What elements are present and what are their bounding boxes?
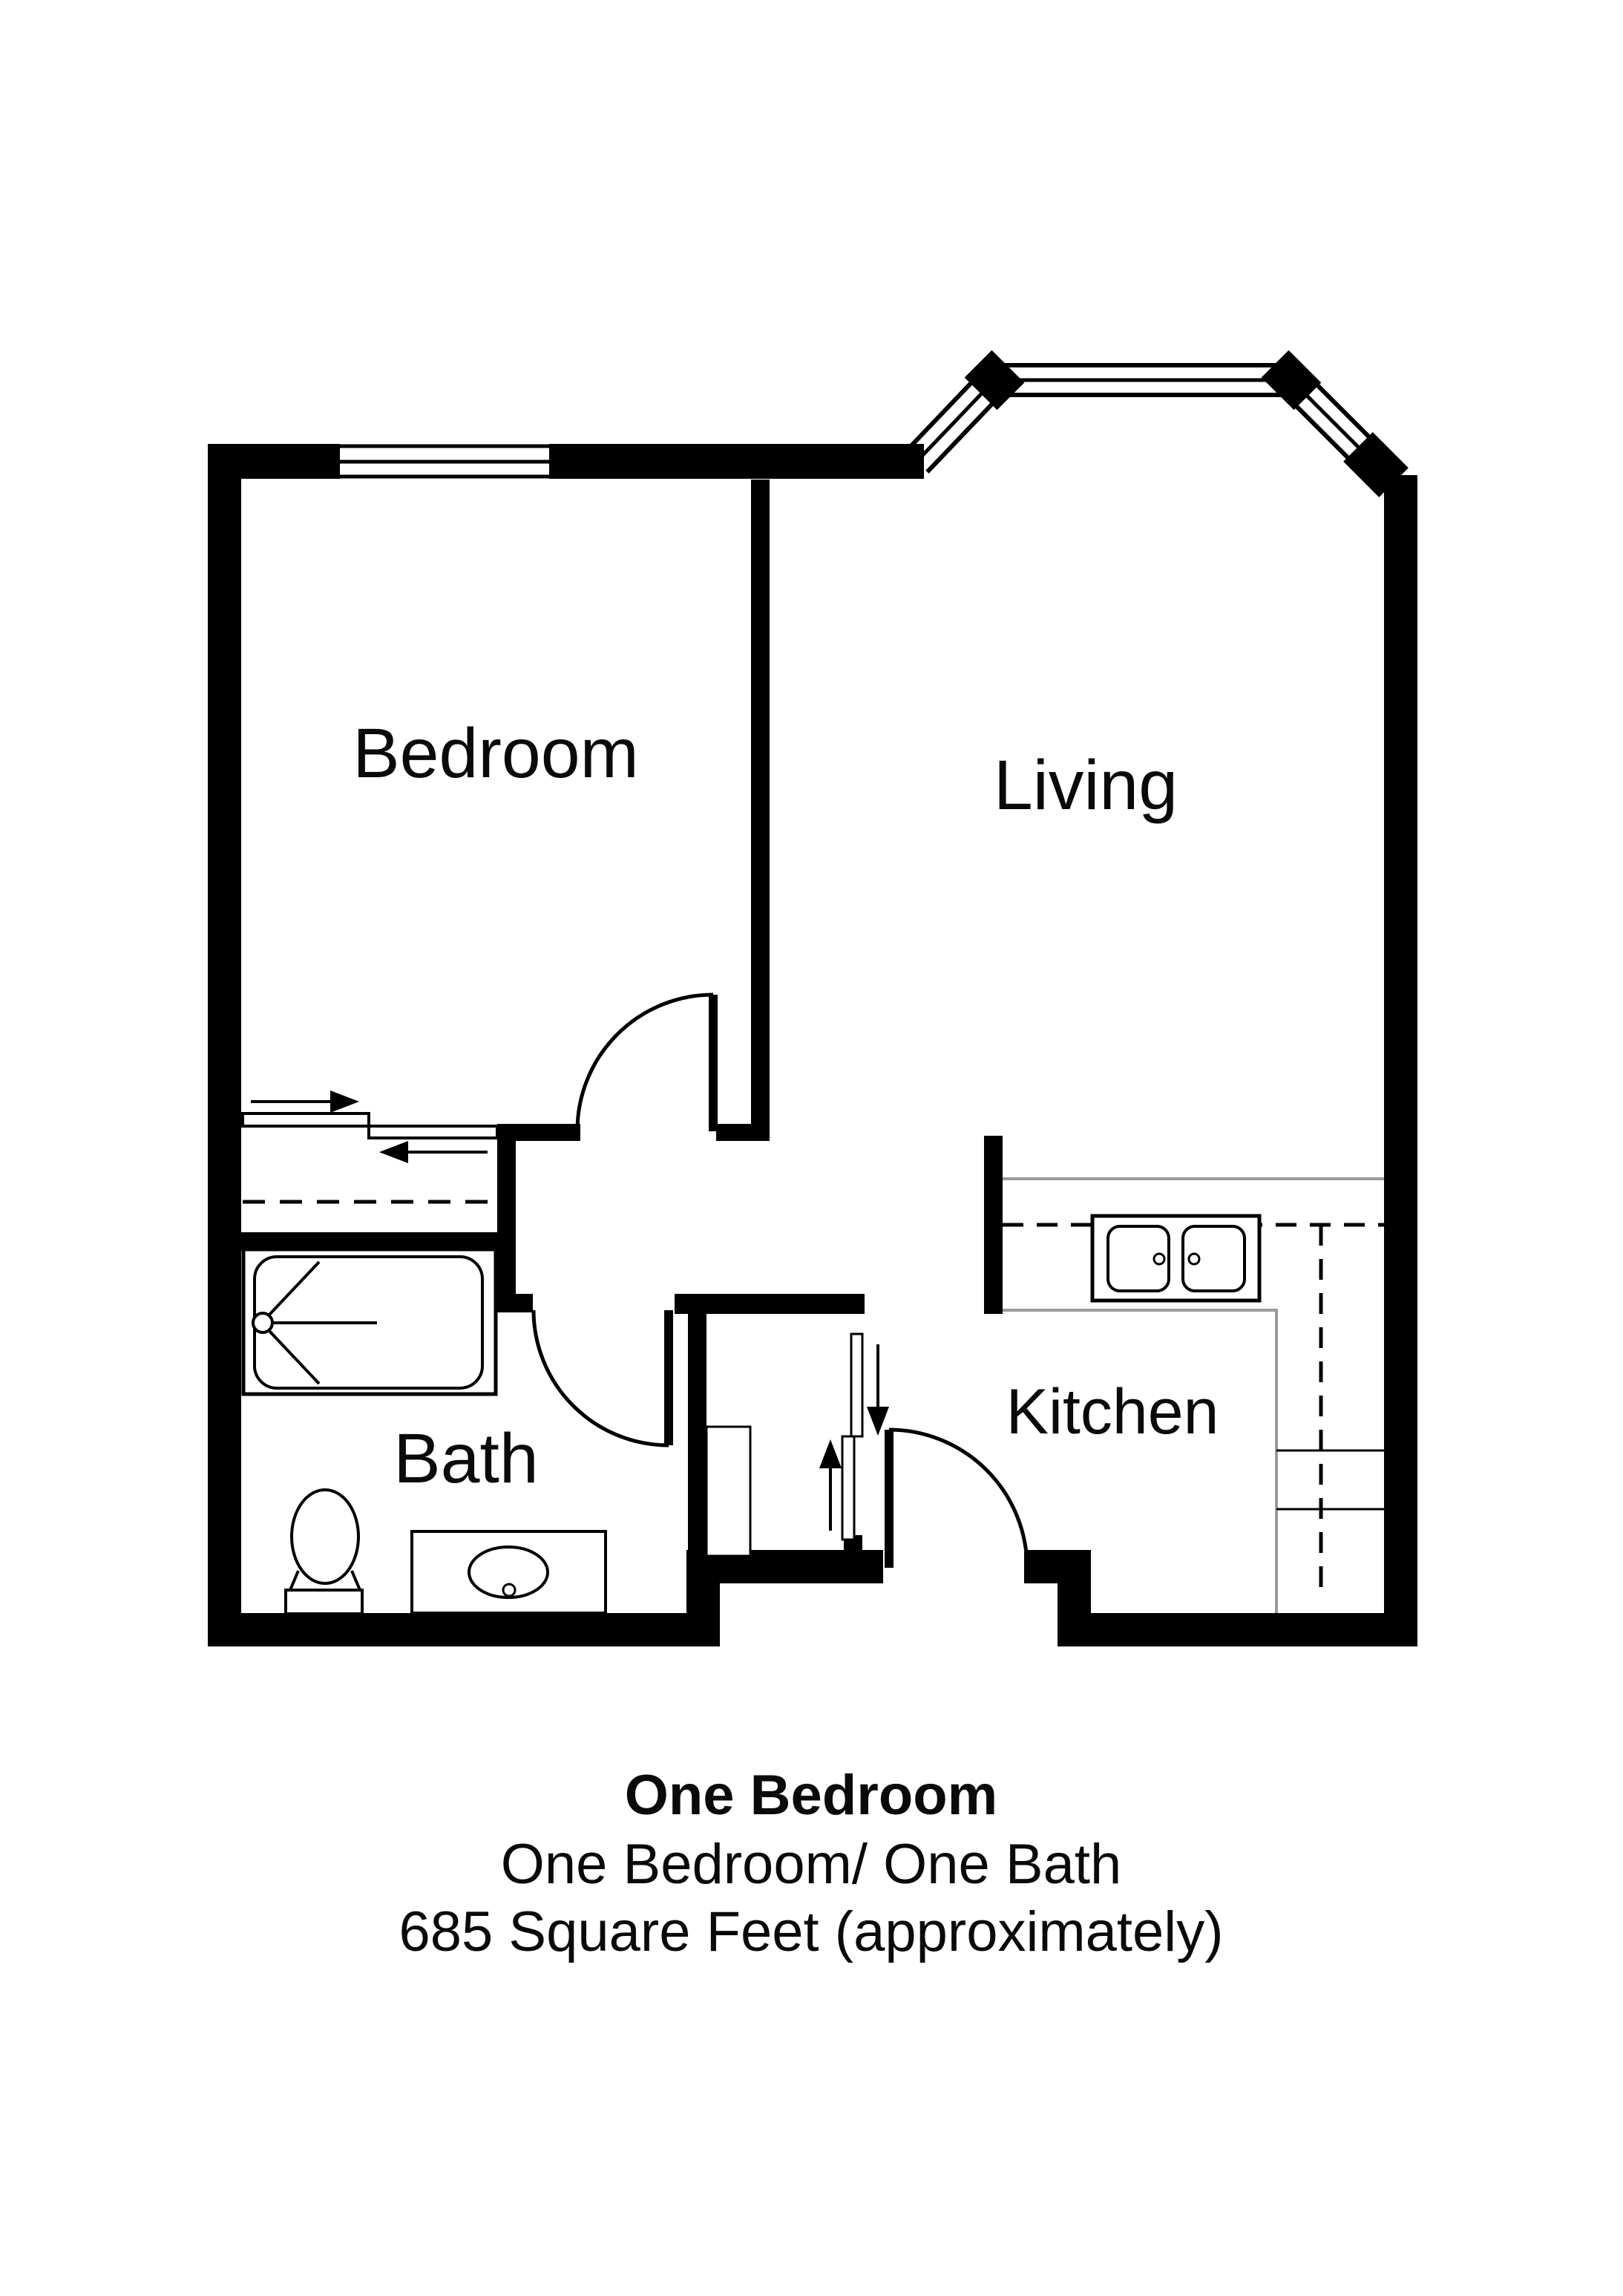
sink-drain-left [1154,1254,1164,1264]
caption-title: One Bedroom [625,1764,998,1827]
top-wall-bedroom-left [208,444,338,479]
closet-sliding-panel-right [369,1126,497,1138]
closet-sliding-panel-left [243,1113,369,1126]
entry-door-right-wall [1024,1550,1091,1583]
kitchen-label: Kitchen [1006,1376,1219,1448]
slide-up-arrow-head [819,1439,842,1468]
divider-wall-foot [716,1124,770,1141]
sliding-door-arrow-icon [819,1439,842,1531]
bedroom-living-divider-wall [751,480,770,1124]
bedroom-closet [243,1090,497,1202]
floor-plan-canvas: Bedroom Living Kitchen Bath One Bedroom … [0,0,1623,2296]
hall-closet-panel-upper [851,1334,862,1436]
bedroom-label: Bedroom [353,714,638,793]
entry-door [885,1430,1027,1568]
walls [208,444,1417,1646]
closet-shelf-icon [706,1427,750,1556]
hall-left-wall [497,1124,516,1310]
sliding-door-arrow-icon [379,1141,488,1163]
door-swing-icon [534,1310,669,1445]
toilet-tank [286,1590,362,1614]
hall-closet-panel-lower [842,1436,854,1540]
door-swing-icon [889,1430,1027,1568]
window-icon [338,444,552,479]
sliding-door-arrow-icon [251,1090,359,1113]
bottom-wall-step-connector [686,1550,720,1646]
right-wall [1384,475,1417,1646]
vanity-sink-icon [412,1531,606,1613]
slide-left-arrow-head [379,1141,408,1163]
bath-door-leaf [664,1310,673,1445]
bedroom-door-leaf [709,995,718,1131]
vanity-drain [503,1584,515,1596]
door-swing-icon [577,995,713,1131]
sink-drain-right [1189,1254,1199,1264]
caption-block: One Bedroom One Bedroom/ One Bath 685 Sq… [399,1764,1223,1963]
caption-subtitle: One Bedroom/ One Bath [501,1833,1121,1896]
left-wall [208,444,241,1646]
bathtub-shower-icon [243,1249,496,1394]
toilet-icon [286,1490,362,1614]
hall-closet [706,1334,889,1556]
top-wall-center [552,444,924,479]
bedroom-door [577,995,718,1131]
sliding-door-arrow-icon [867,1344,889,1436]
hall-closet-left-wall [688,1314,706,1557]
entry-door-leaf [885,1430,894,1568]
bath-door [534,1310,673,1445]
bath-door-jamb-stub [497,1294,533,1312]
shower-head [253,1313,272,1332]
caption-area: 685 Square Feet (approximately) [399,1900,1223,1963]
hall-closet-top-wall [675,1294,865,1314]
living-label: Living [994,746,1178,825]
slide-right-arrow-head [330,1090,359,1113]
double-kitchen-sink-icon [1092,1216,1259,1301]
entry-step-wall [1058,1583,1091,1615]
bottom-wall-kitchen [1058,1613,1417,1646]
bay-window-icon [917,350,1409,497]
floor-plan-page: Bedroom Living Kitchen Bath One Bedroom … [0,0,1623,2296]
toilet-bowl [292,1490,358,1583]
bottom-wall-left [208,1613,720,1646]
kitchen-living-stub-wall [984,1136,1003,1314]
bath-label: Bath [393,1419,538,1498]
